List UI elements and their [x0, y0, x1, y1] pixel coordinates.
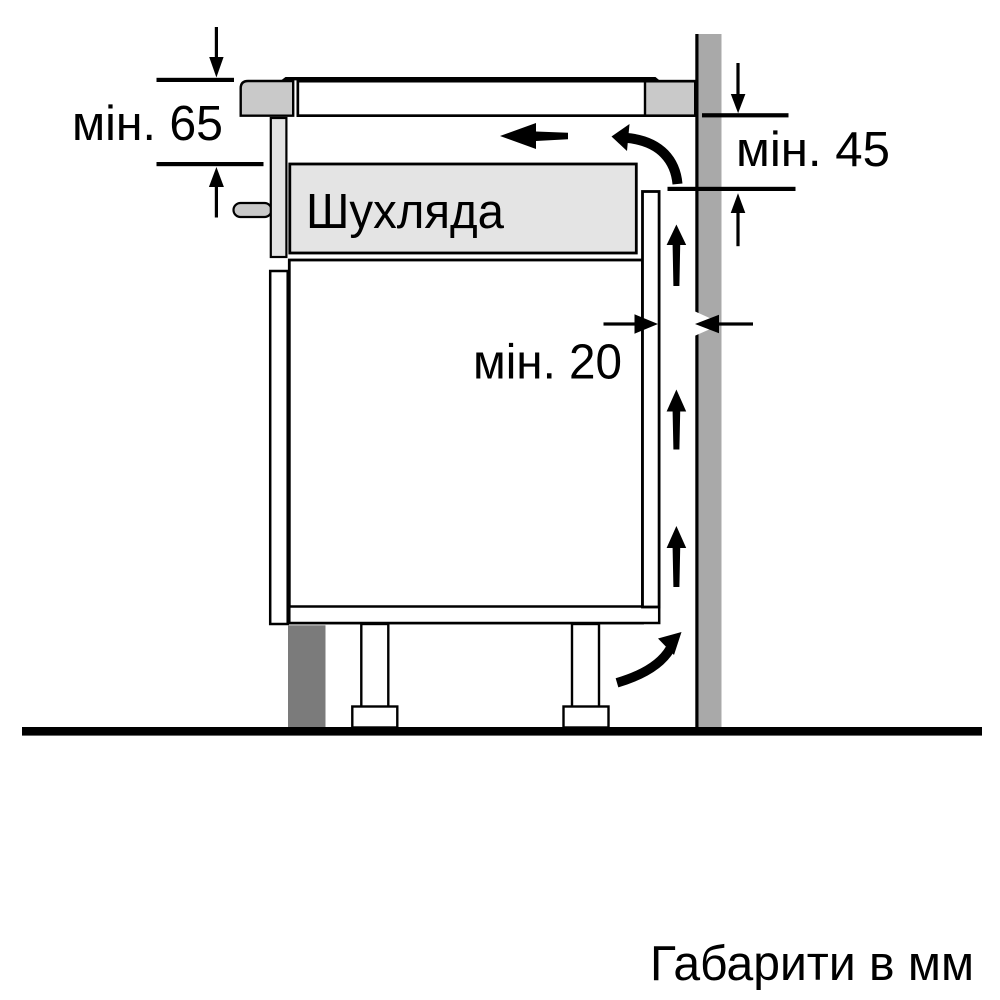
- svg-text:Шухляда: Шухляда: [306, 185, 505, 239]
- svg-text:мін. 65: мін. 65: [72, 97, 223, 151]
- svg-text:мін. 20: мін. 20: [473, 336, 622, 390]
- svg-text:Габарити в мм: Габарити в мм: [650, 937, 974, 991]
- svg-text:мін. 45: мін. 45: [736, 123, 890, 177]
